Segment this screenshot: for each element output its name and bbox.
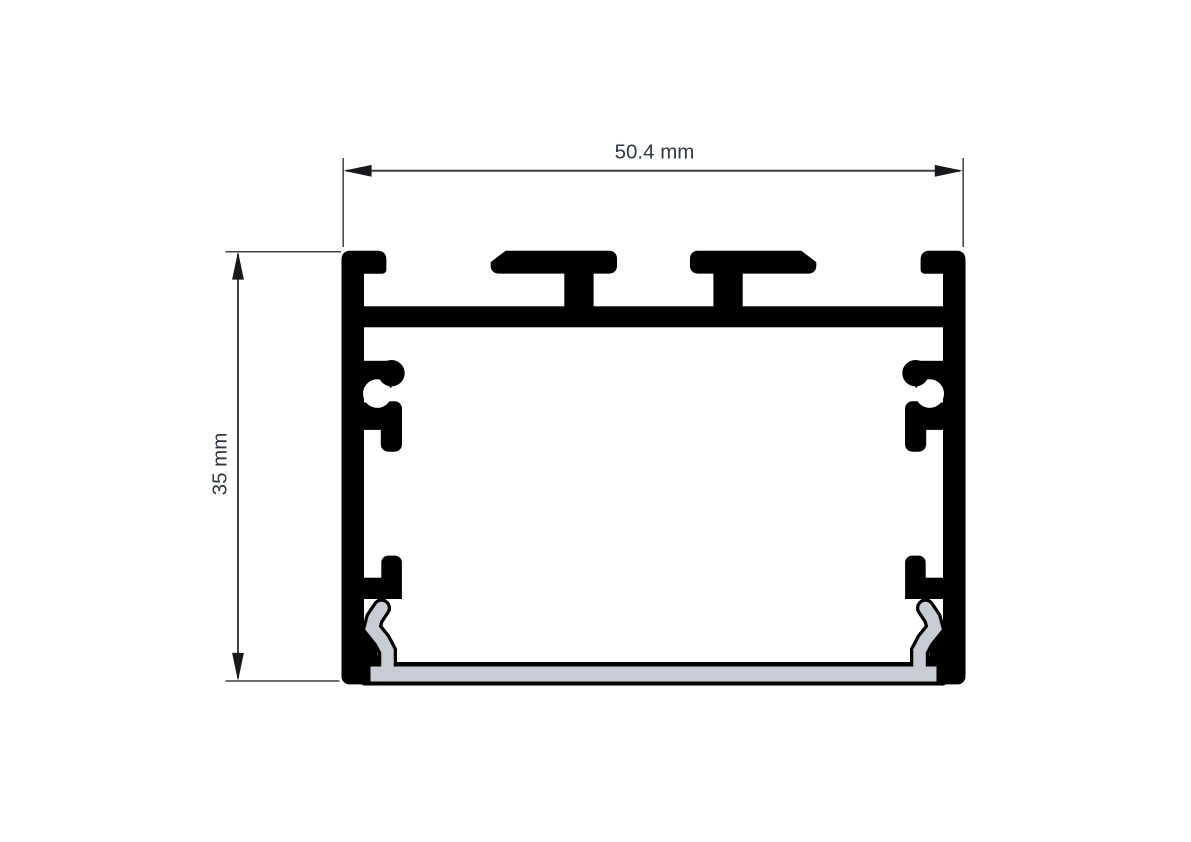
svg-text:35 mm: 35 mm (209, 433, 232, 496)
svg-text:50.4 mm: 50.4 mm (615, 141, 695, 164)
